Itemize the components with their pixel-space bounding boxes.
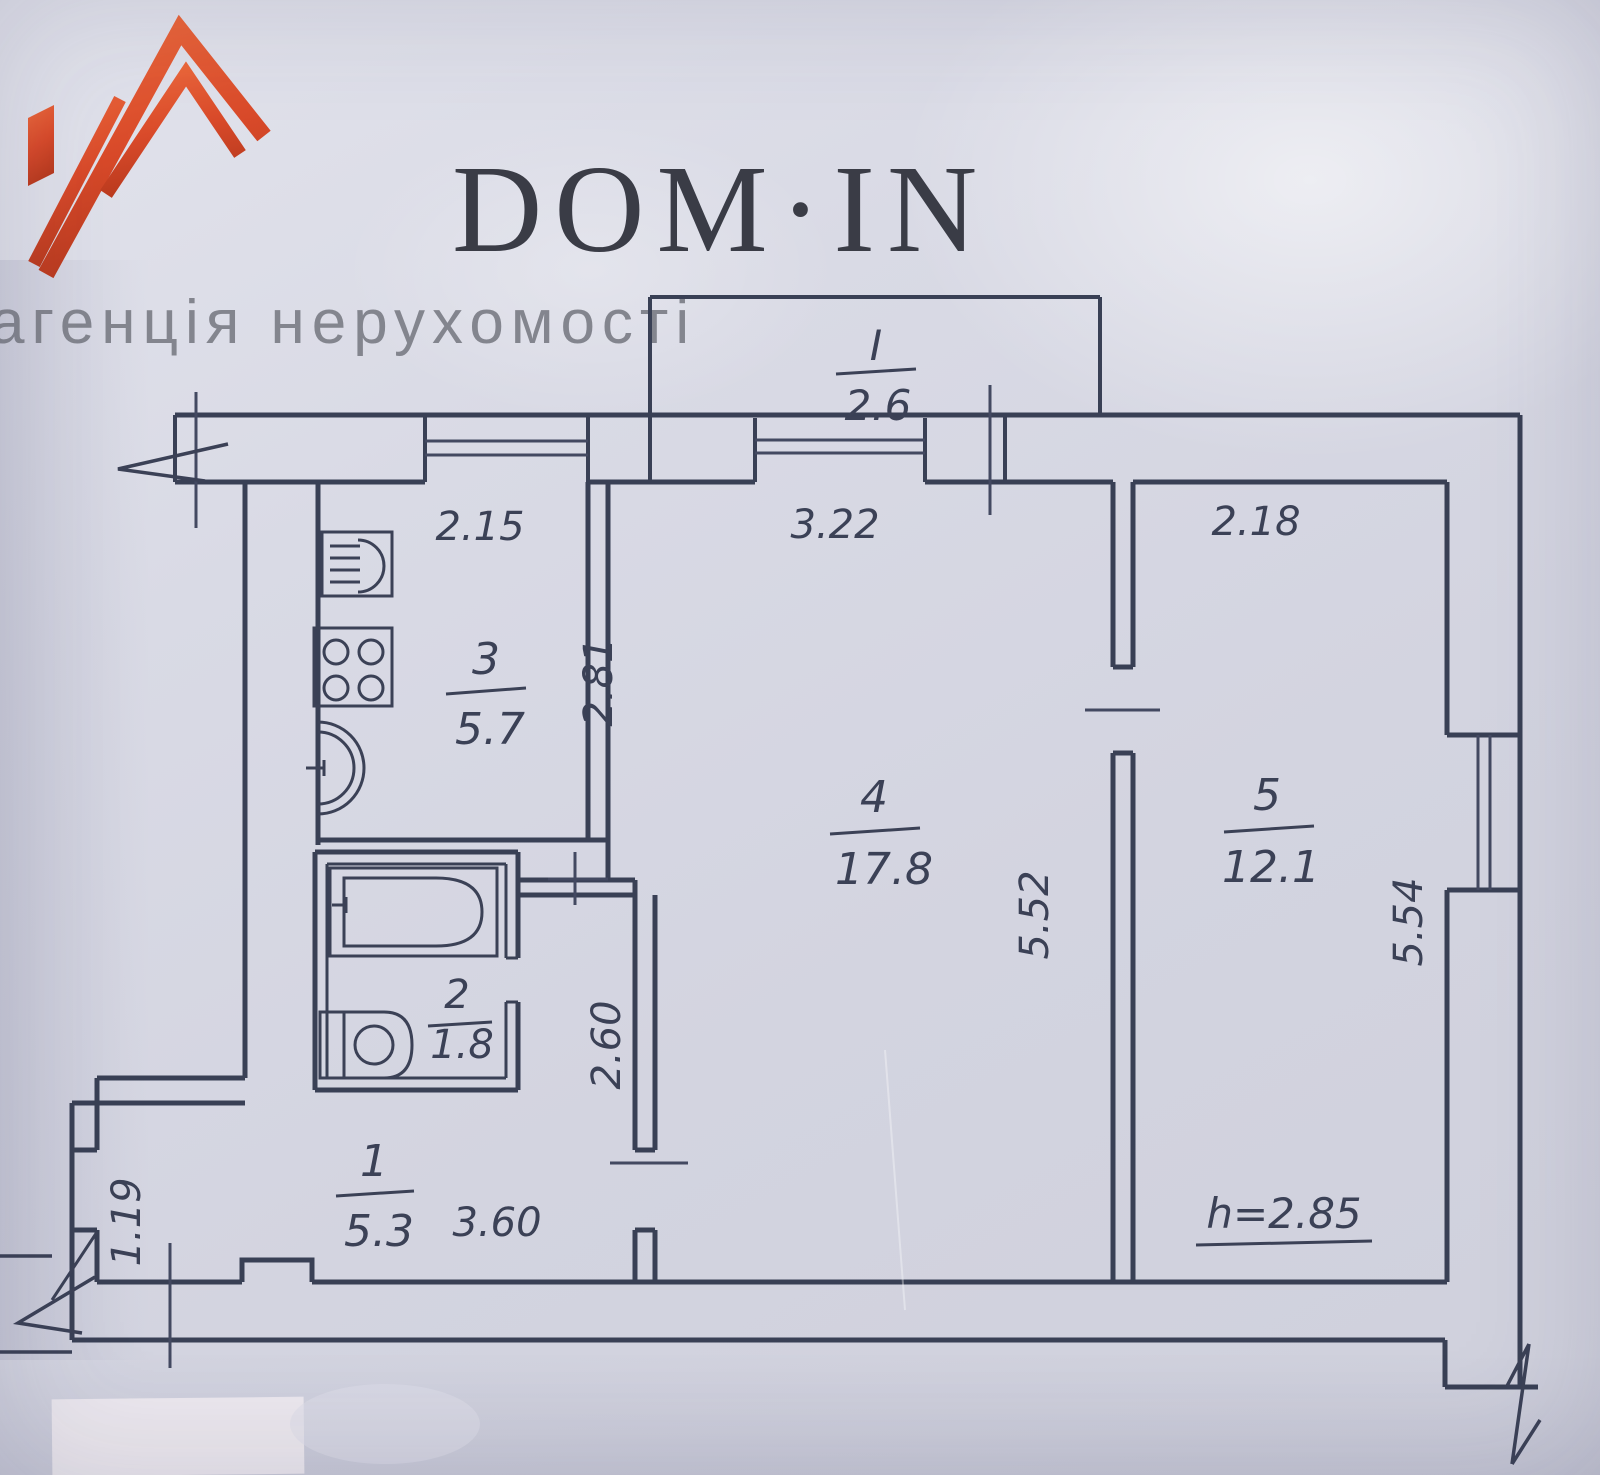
bedroom-area-label: 12.1	[1222, 842, 1320, 893]
bottom-outer-wall	[72, 1340, 1538, 1387]
kitchen-fraction-line	[446, 688, 526, 694]
kitchen-window	[425, 441, 588, 455]
redacted-stamp	[52, 1397, 305, 1475]
balcony-area-label: 2.6	[845, 381, 912, 430]
bedroom-number-label: 5	[1253, 770, 1281, 821]
bottom-inner-wall	[97, 1260, 1447, 1282]
living-room-depth-dim: 5.52	[1012, 870, 1058, 959]
bedroom-width-dim: 2.18	[1211, 499, 1300, 545]
hallway-area-label: 5.3	[344, 1206, 414, 1257]
kitchen-number-label: 3	[472, 634, 500, 685]
bathtub-icon	[330, 868, 497, 956]
living-room-window	[755, 440, 925, 453]
kitchen-width-dim: 2.15	[435, 504, 524, 550]
living-room-area-label: 17.8	[835, 844, 933, 895]
break-marks	[0, 444, 1540, 1464]
living-room-fraction-line	[830, 828, 920, 834]
kitchen-area-label: 5.7	[455, 704, 525, 755]
paper-smudge	[290, 1384, 480, 1464]
scan-artifacts	[52, 1050, 905, 1475]
ceiling-height-label: h=2.85	[1206, 1189, 1361, 1238]
right-wall	[1447, 415, 1520, 1387]
hallway-fraction-line	[336, 1191, 414, 1196]
living-room-width-dim: 3.22	[790, 502, 879, 548]
partition-living-bedroom	[1113, 482, 1133, 1282]
stove-icon	[314, 628, 392, 706]
floor-plan: I 2.6 3 5.7 2 1.8 1 5.3 4 17.8 5 12.1 2.…	[0, 0, 1600, 1475]
bedroom-depth-dim: 5.54	[1386, 877, 1432, 966]
toilet-icon	[320, 1012, 412, 1078]
ceiling-height-underline	[1196, 1241, 1372, 1245]
hallway-number-label: 1	[360, 1136, 388, 1187]
left-wall	[72, 482, 245, 1340]
bedroom-fraction-line	[1224, 826, 1314, 832]
bathroom-number-label: 2	[444, 972, 469, 1018]
kitchen-depth-dim: 2.81	[576, 637, 622, 726]
balcony-number-label: I	[870, 321, 882, 370]
bathroom-area-label: 1.8	[430, 1022, 494, 1068]
corridor-depth-dim: 2.60	[584, 1000, 630, 1089]
hallway-width-dim: 3.60	[452, 1200, 541, 1246]
washbasin-icon	[306, 722, 364, 814]
living-room-number-label: 4	[860, 772, 888, 823]
bedroom-window	[1478, 735, 1490, 890]
break-arrow-bottom-right	[1507, 1344, 1540, 1464]
paper-crease	[885, 1050, 905, 1310]
kitchen-sink-icon	[322, 532, 392, 596]
room-labels: I 2.6 3 5.7 2 1.8 1 5.3 4 17.8 5 12.1	[336, 321, 1320, 1257]
hallway-niche-dim: 1.19	[104, 1177, 150, 1266]
